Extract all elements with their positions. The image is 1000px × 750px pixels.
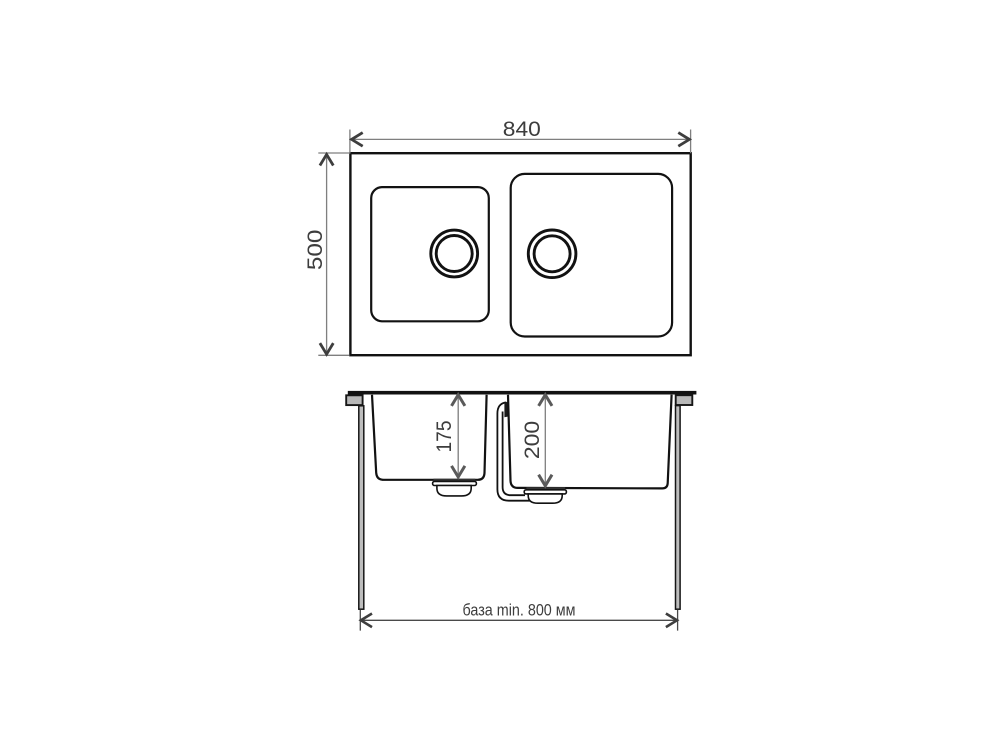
svg-text:175: 175 (433, 421, 456, 453)
svg-text:500: 500 (303, 230, 327, 271)
svg-text:840: 840 (503, 117, 541, 141)
svg-text:200: 200 (520, 421, 544, 459)
svg-text:база min. 800 мм: база min. 800 мм (463, 602, 576, 620)
